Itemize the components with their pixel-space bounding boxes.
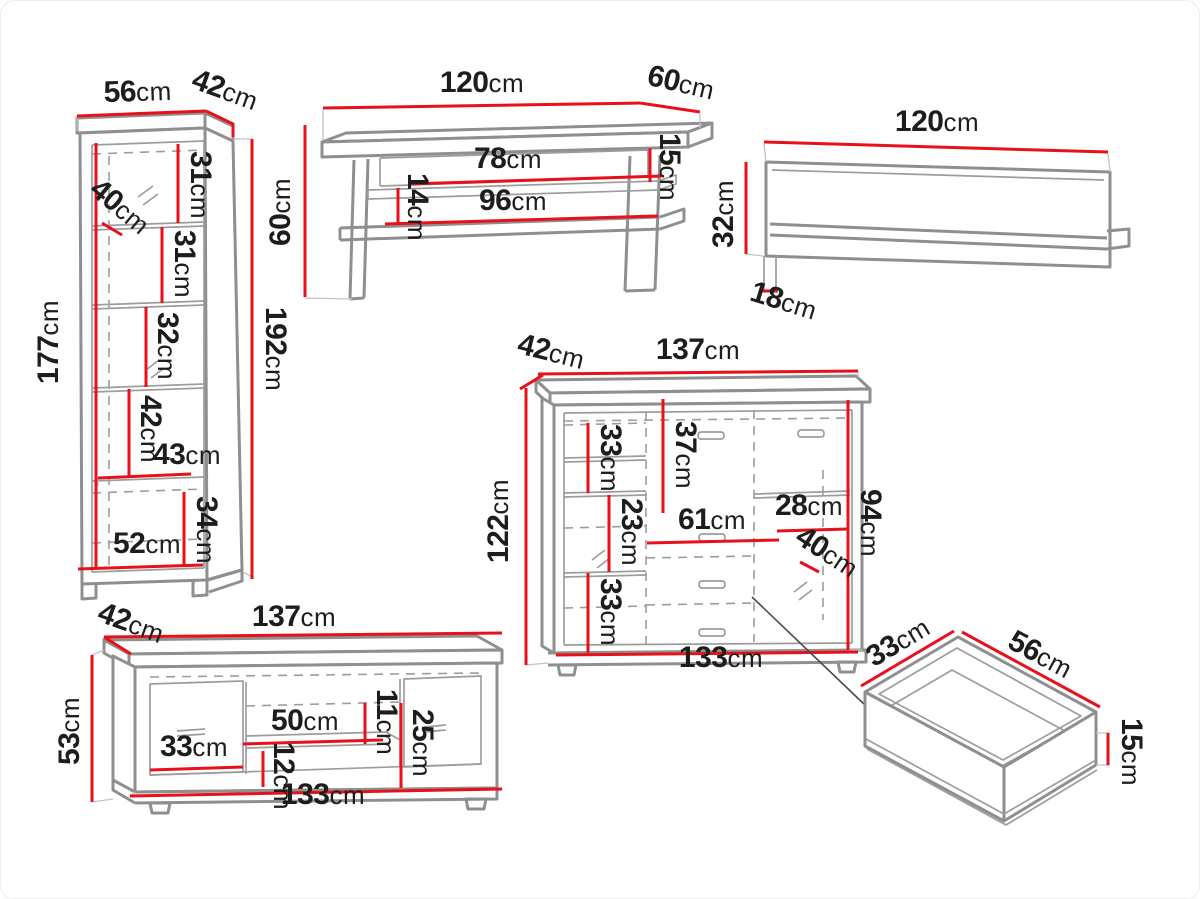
coffee-table-lower-shelf-label: 96cm: [479, 184, 547, 217]
vitrine-depth-label: 42cm: [188, 63, 263, 117]
tv-stand-shelf-width-label: 50cm: [271, 704, 339, 737]
vitrine-shelf1-label: 31cm: [184, 151, 217, 219]
coffee-table-opening-width-label: 78cm: [474, 142, 542, 175]
vitrine-bottom-width-label: 52cm: [113, 527, 181, 560]
diagram-canvas: 56cm 42cm 40cm 31cm 31cm 32cm 42cm 43cm …: [0, 0, 1200, 899]
wall-shelf-drawing: [746, 144, 1129, 291]
sideboard-group: 42cm 137cm 122cm 94cm 33cm 37cm 23cm 61c…: [482, 328, 887, 706]
coffee-table-shelf-gap-label: 14cm: [401, 173, 434, 241]
sideboard-right-section-label: 28cm: [775, 489, 843, 522]
drawer-height-label: 15cm: [1115, 718, 1148, 786]
coffee-table-width-label: 120cm: [440, 66, 524, 99]
sideboard-height-label: 122cm: [482, 479, 515, 563]
coffee-table-depth-label: 60cm: [644, 59, 718, 106]
sideboard-front-height-label: 94cm: [854, 489, 887, 557]
tv-stand-door-width-label: 33cm: [160, 730, 228, 763]
wall-shelf-depth-label: 18cm: [746, 275, 821, 326]
sideboard-drawer-width-label: 61cm: [678, 503, 746, 536]
vitrine-height-label: 192cm: [259, 307, 292, 391]
wall-shelf-width-label: 120cm: [895, 105, 979, 138]
vitrine-inner-width-label: 43cm: [153, 438, 221, 471]
coffee-table-group: 120cm 60cm 60cm 78cm 96cm 15cm 14cm: [264, 59, 718, 299]
vitrine-width-label: 56cm: [103, 74, 172, 109]
sideboard-top-left-shelf-label: 33cm: [594, 424, 627, 492]
sideboard-depth-label: 42cm: [514, 328, 588, 376]
vitrine-group: 56cm 42cm 40cm 31cm 31cm 32cm 42cm 43cm …: [32, 63, 292, 599]
tv-stand-width-label: 137cm: [252, 600, 336, 633]
vitrine-inner-height-label: 177cm: [32, 300, 65, 384]
tv-stand-group: 42cm 137cm 53cm 33cm 50cm 11cm 12cm 25cm…: [53, 596, 502, 813]
coffee-table-top-gap-label: 15cm: [653, 133, 686, 201]
wall-shelf-height-label: 32cm: [707, 180, 740, 248]
wall-shelf-group: 120cm 32cm 18cm: [707, 105, 1129, 327]
vitrine-shelf3-label: 32cm: [151, 312, 184, 380]
drawer-group: 33cm 56cm 15cm: [860, 610, 1148, 825]
tv-stand-inner-width-label: 133cm: [281, 778, 365, 811]
vitrine-shelf2-label: 31cm: [168, 230, 201, 298]
sideboard-top-section-label: 37cm: [669, 421, 702, 489]
sideboard-inner-width-label: 133cm: [679, 641, 763, 674]
coffee-table-height-label: 60cm: [264, 178, 297, 246]
tv-stand-upper-gap-label: 11cm: [370, 689, 403, 755]
vitrine-bottom-section-label: 34cm: [190, 496, 223, 564]
sideboard-width-label: 137cm: [656, 333, 740, 366]
furniture-dimensions-diagram: 56cm 42cm 40cm 31cm 31cm 32cm 42cm 43cm …: [0, 0, 1200, 899]
sideboard-bottom-left-shelf-label: 33cm: [594, 578, 627, 646]
tv-stand-niche-height-label: 25cm: [406, 709, 439, 777]
sideboard-middle-left-label: 23cm: [615, 498, 648, 566]
tv-stand-height-label: 53cm: [53, 697, 86, 765]
